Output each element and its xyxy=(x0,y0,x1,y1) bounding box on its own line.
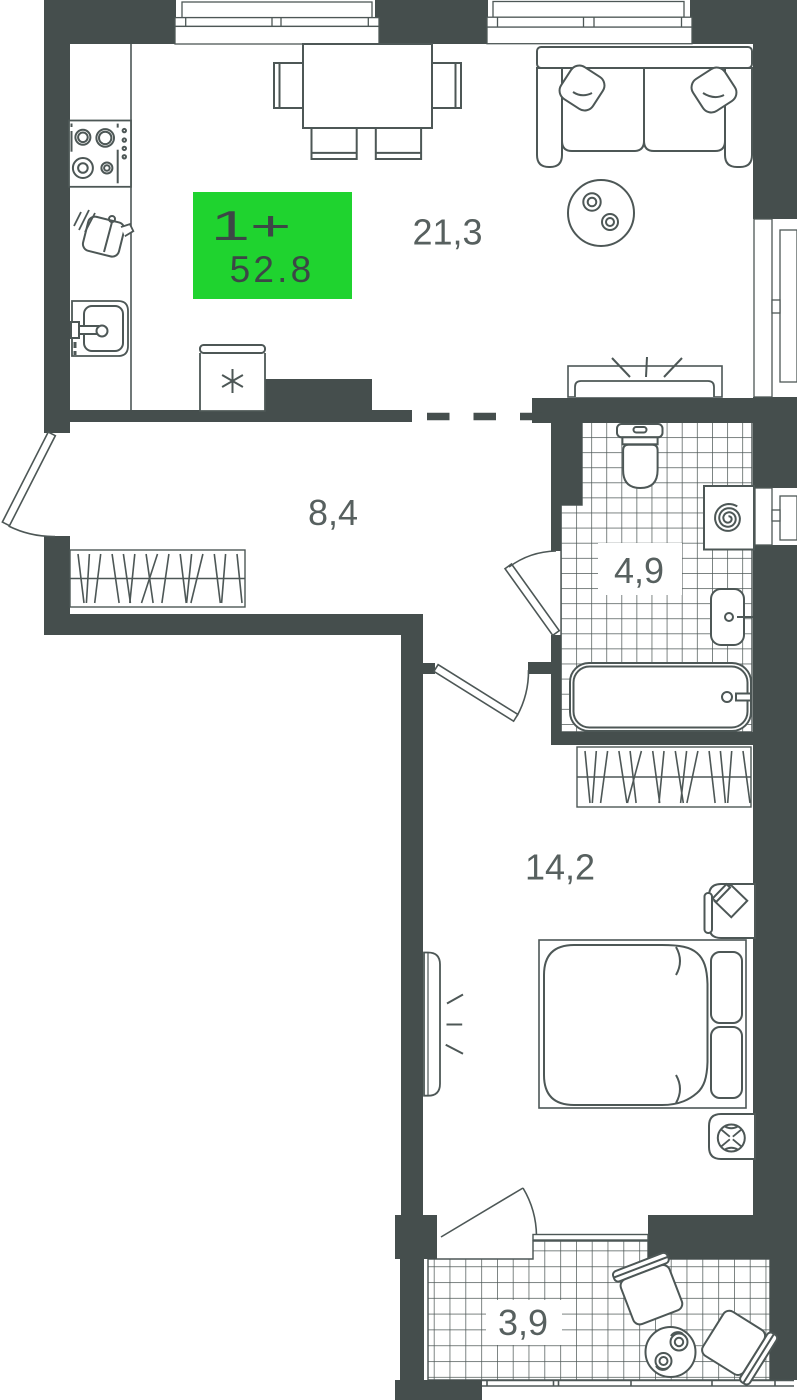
svg-text:14,2: 14,2 xyxy=(525,847,595,888)
svg-text:3,9: 3,9 xyxy=(498,1302,548,1343)
svg-text:1+: 1+ xyxy=(211,202,291,249)
svg-text:21,3: 21,3 xyxy=(412,212,482,253)
svg-text:52.8: 52.8 xyxy=(230,249,315,290)
svg-text:4,9: 4,9 xyxy=(614,550,664,591)
svg-text:8,4: 8,4 xyxy=(308,492,358,533)
